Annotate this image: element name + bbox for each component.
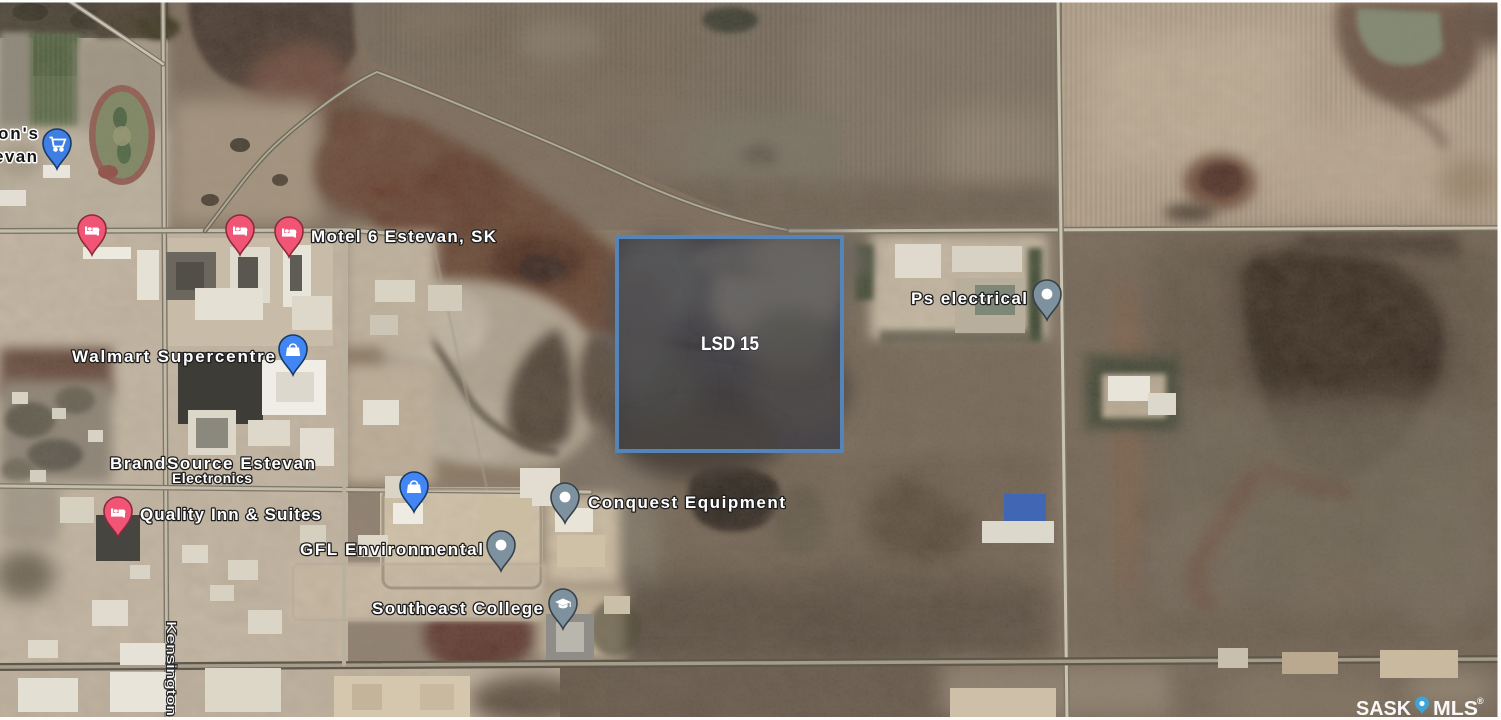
svg-text:®: ® — [1477, 696, 1484, 706]
svg-text:LSD 15: LSD 15 — [701, 334, 759, 355]
svg-text:SASK: SASK — [1356, 697, 1411, 720]
svg-text:Quality Inn & Suites: Quality Inn & Suites — [140, 505, 321, 524]
svg-text:Conquest Equipment: Conquest Equipment — [588, 493, 785, 512]
svg-text:on's: on's — [0, 124, 38, 143]
svg-text:Walmart Supercentre: Walmart Supercentre — [72, 347, 275, 366]
svg-text:GFL Environmental: GFL Environmental — [300, 540, 483, 559]
svg-text:Southeast College: Southeast College — [372, 599, 543, 618]
svg-text:evan: evan — [0, 147, 37, 166]
svg-text:Electronics: Electronics — [172, 470, 252, 486]
svg-text:Motel 6 Estevan, SK: Motel 6 Estevan, SK — [311, 227, 497, 246]
svg-text:Ps electrical: Ps electrical — [911, 289, 1027, 308]
svg-text:MLS: MLS — [1433, 697, 1478, 720]
svg-text:Kensington: Kensington — [164, 621, 179, 716]
